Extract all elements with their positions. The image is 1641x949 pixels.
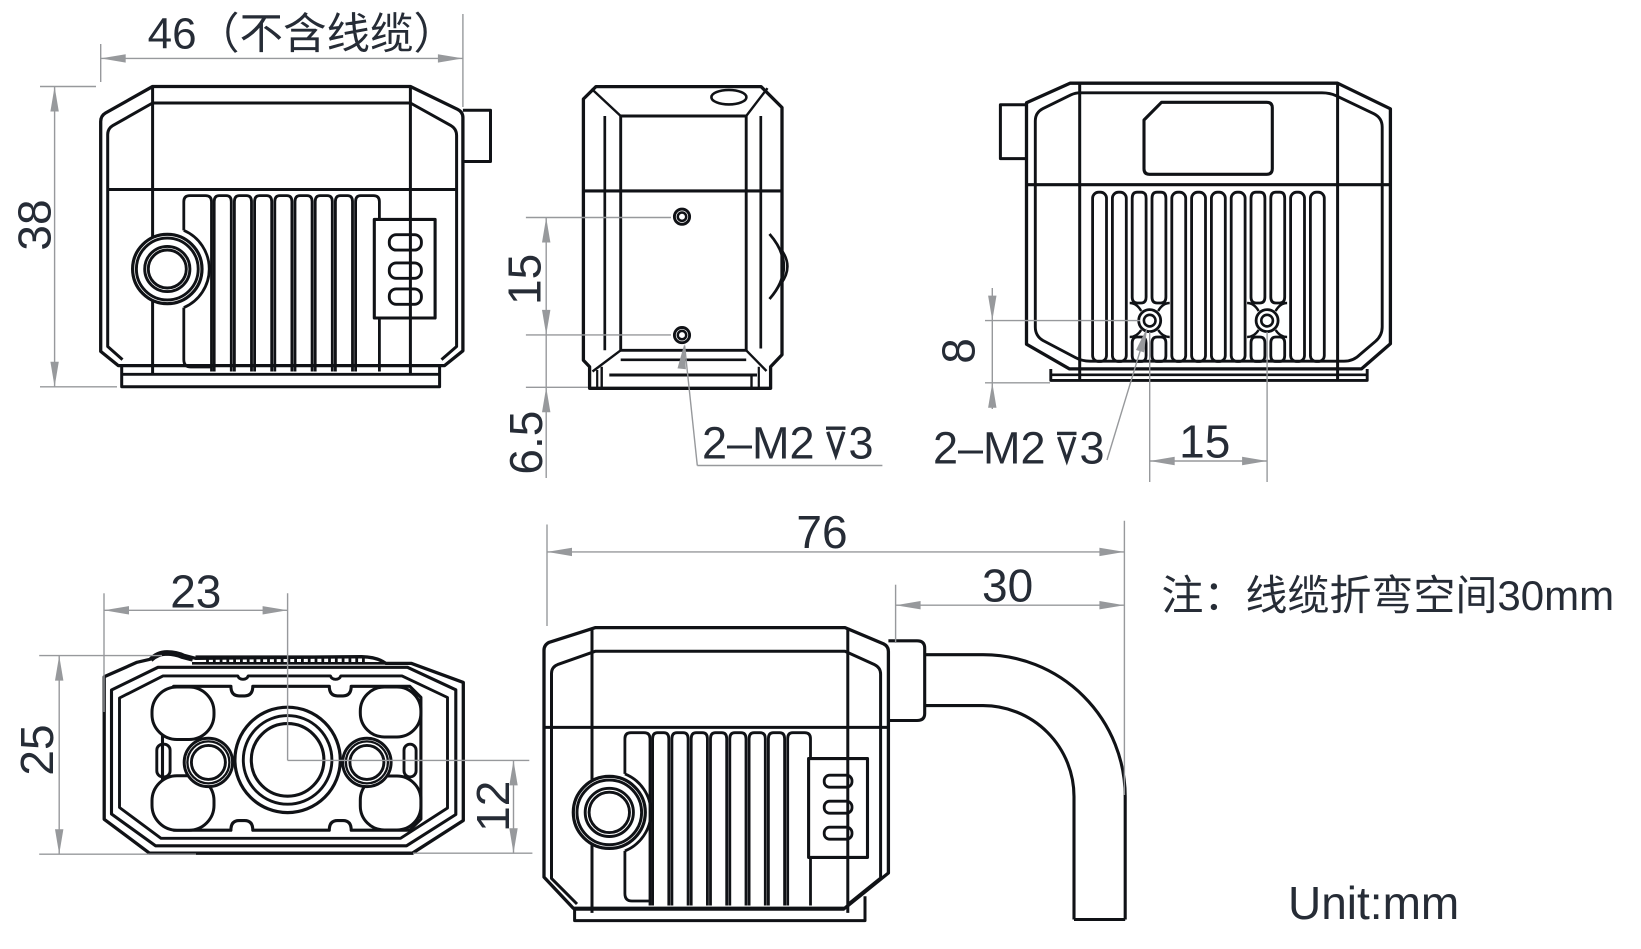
svg-text:12: 12 — [467, 781, 519, 832]
svg-text:3: 3 — [849, 417, 874, 468]
svg-text:30: 30 — [982, 559, 1033, 611]
svg-text:15: 15 — [499, 254, 551, 305]
svg-text:23: 23 — [170, 566, 221, 618]
svg-text:Unit:mm: Unit:mm — [1288, 877, 1459, 929]
svg-text:3: 3 — [1080, 423, 1105, 474]
svg-text:6.5: 6.5 — [500, 411, 552, 475]
svg-text:2–M2: 2–M2 — [702, 417, 815, 468]
svg-text:30mm: 30mm — [1497, 572, 1614, 619]
svg-text:38: 38 — [8, 199, 60, 250]
svg-text:8: 8 — [933, 338, 985, 364]
svg-text:46: 46 — [148, 10, 197, 59]
svg-text:15: 15 — [1179, 416, 1230, 468]
svg-text:2–M2: 2–M2 — [933, 423, 1046, 474]
svg-text:25: 25 — [11, 724, 63, 775]
svg-text:76: 76 — [796, 506, 847, 558]
